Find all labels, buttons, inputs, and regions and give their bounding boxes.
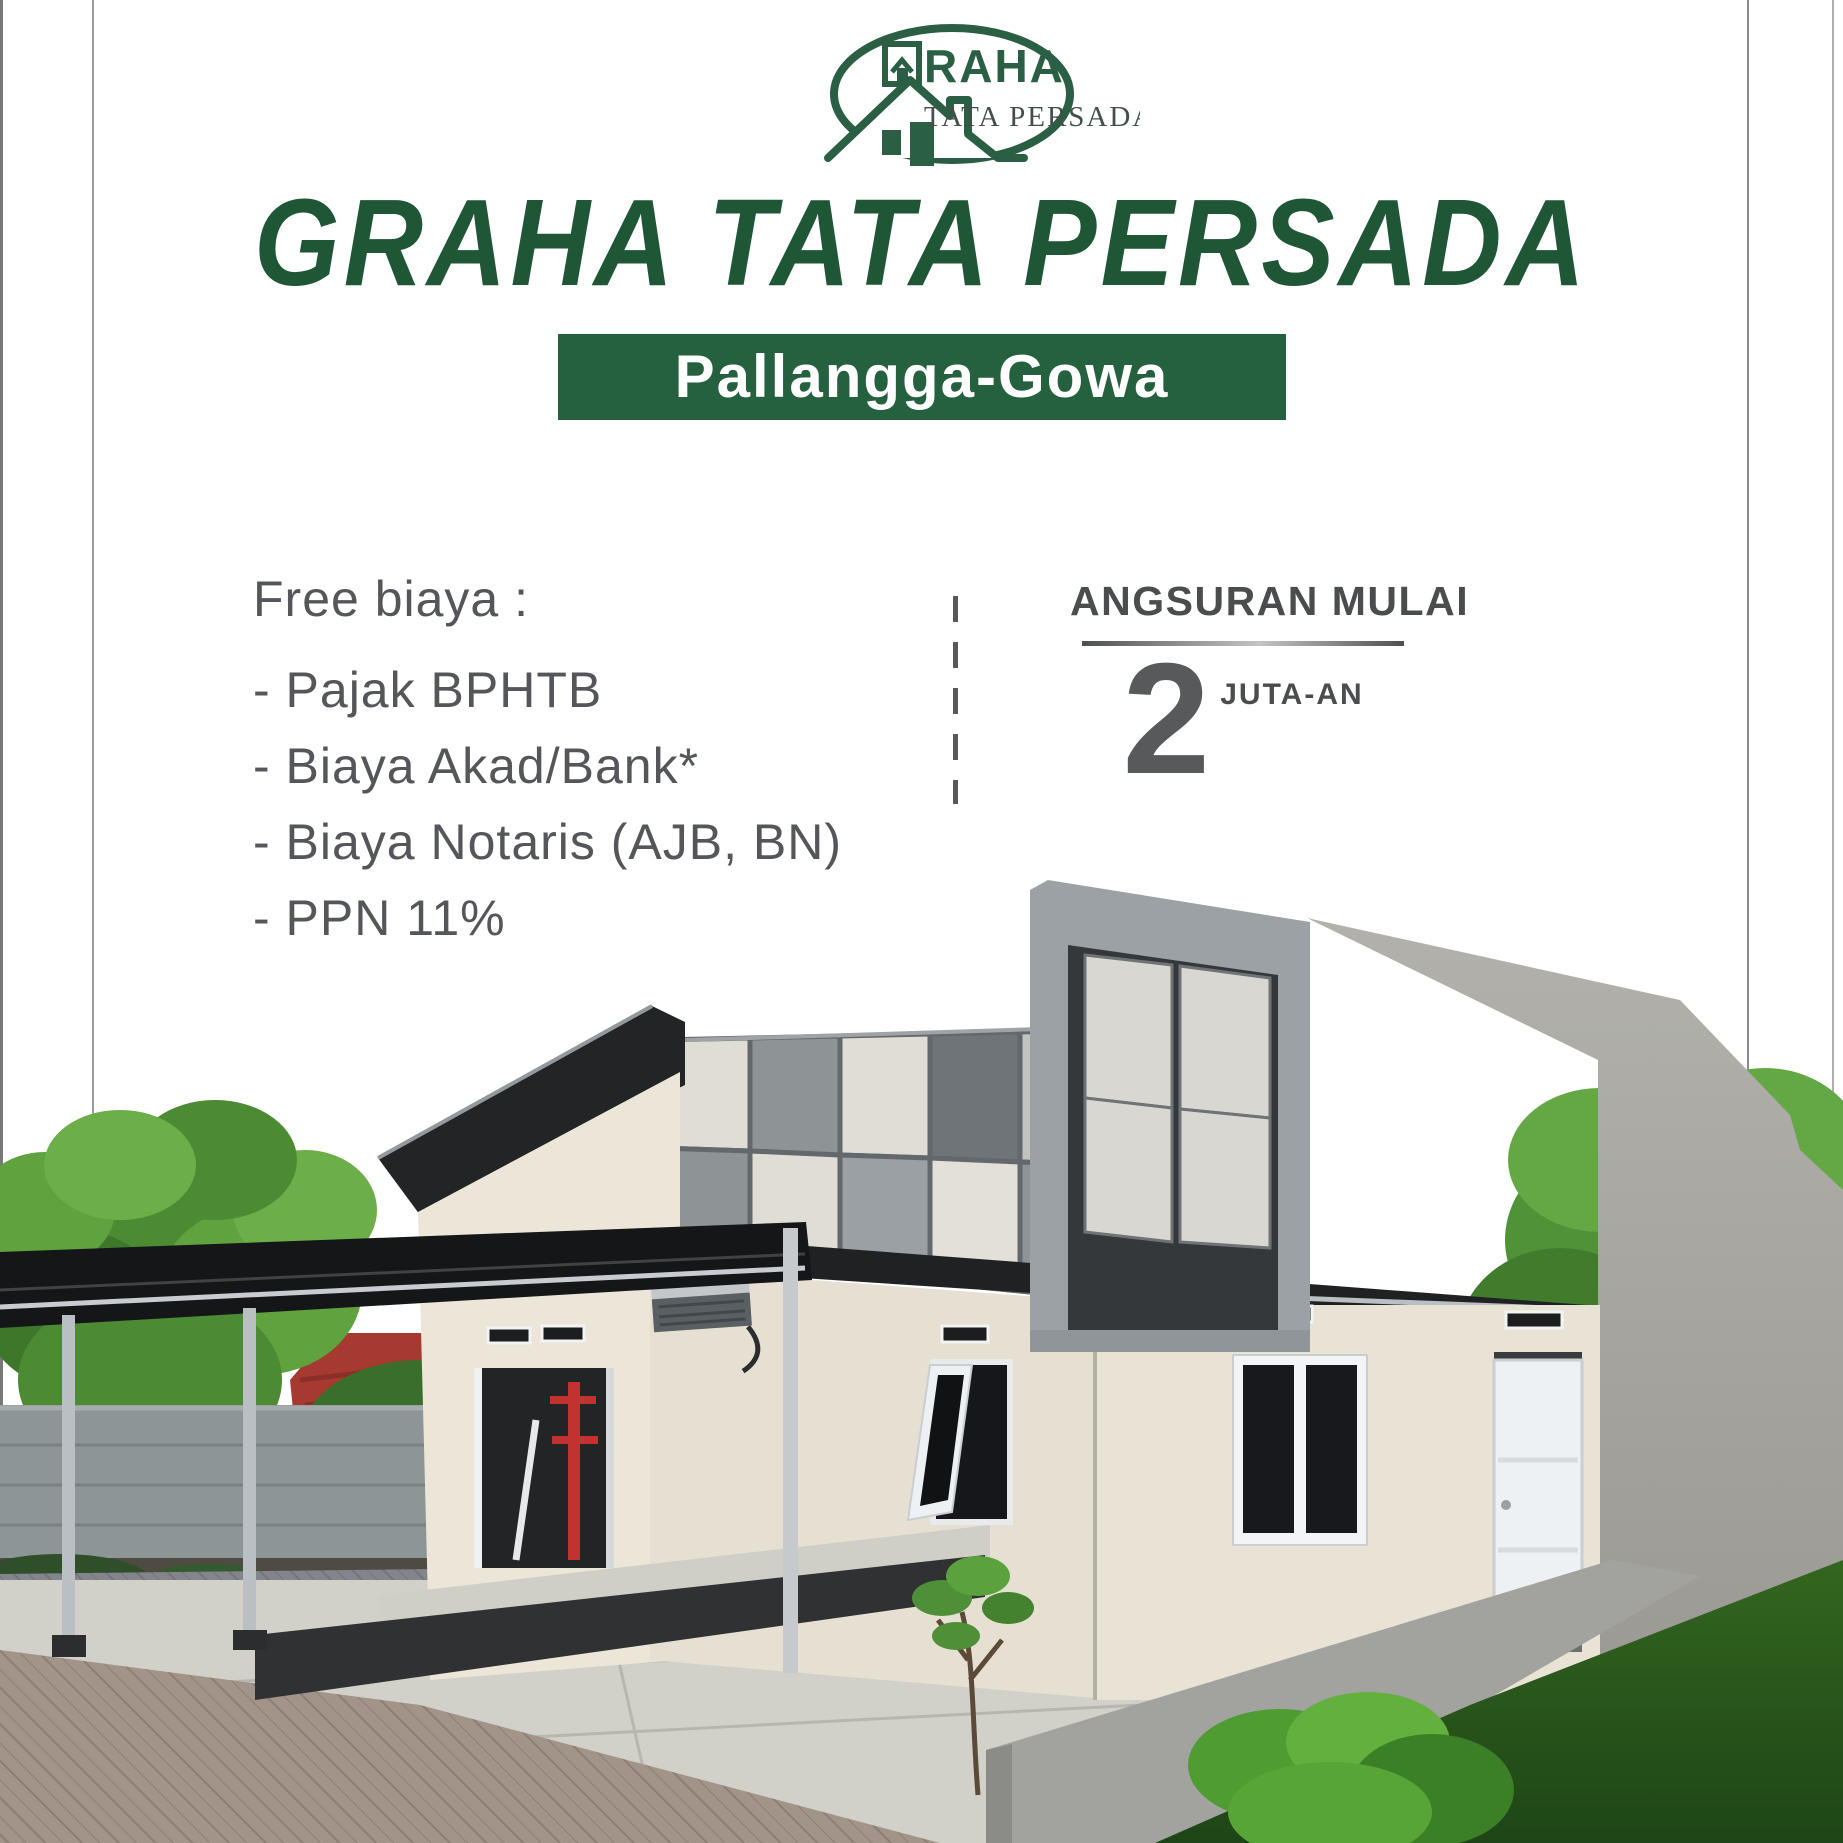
front-low-wall-end — [986, 1744, 1012, 1843]
list-item: - Biaya Akad/Bank* — [253, 728, 842, 804]
list-item: - Pajak BPHTB — [253, 652, 842, 728]
free-costs-section: Free biaya : - Pajak BPHTB - Biaya Akad/… — [253, 570, 842, 956]
installment-amount: 2 — [1122, 648, 1210, 790]
free-costs-list: - Pajak BPHTB - Biaya Akad/Bank* - Biaya… — [253, 652, 842, 956]
installment-section: ANGSURAN MULAI 2 JUTA-AN — [1070, 578, 1416, 790]
company-logo-icon: RAHA TATA PERSADA — [800, 22, 1140, 174]
property-flyer: RAHA TATA PERSADA GRAHA TATA PERSADA Pal… — [0, 0, 1843, 1843]
location-banner: Pallangga-Gowa — [558, 334, 1286, 420]
list-item: - Biaya Notaris (AJB, BN) — [253, 804, 842, 880]
company-logo: RAHA TATA PERSADA — [800, 22, 1140, 174]
list-item: - PPN 11% — [253, 880, 842, 956]
installment-unit: JUTA-AN — [1220, 678, 1363, 712]
gable-block — [1030, 880, 1310, 1352]
house-photo — [0, 860, 1843, 1843]
free-costs-heading: Free biaya : — [253, 570, 842, 628]
installment-heading: ANGSURAN MULAI — [1070, 578, 1416, 625]
dashed-divider — [953, 596, 958, 804]
logo-brand-subtext: TATA PERSADA — [924, 101, 1140, 133]
page-title: GRAHA TATA PERSADA — [0, 172, 1843, 314]
logo-brand-text: RAHA — [924, 40, 1065, 92]
